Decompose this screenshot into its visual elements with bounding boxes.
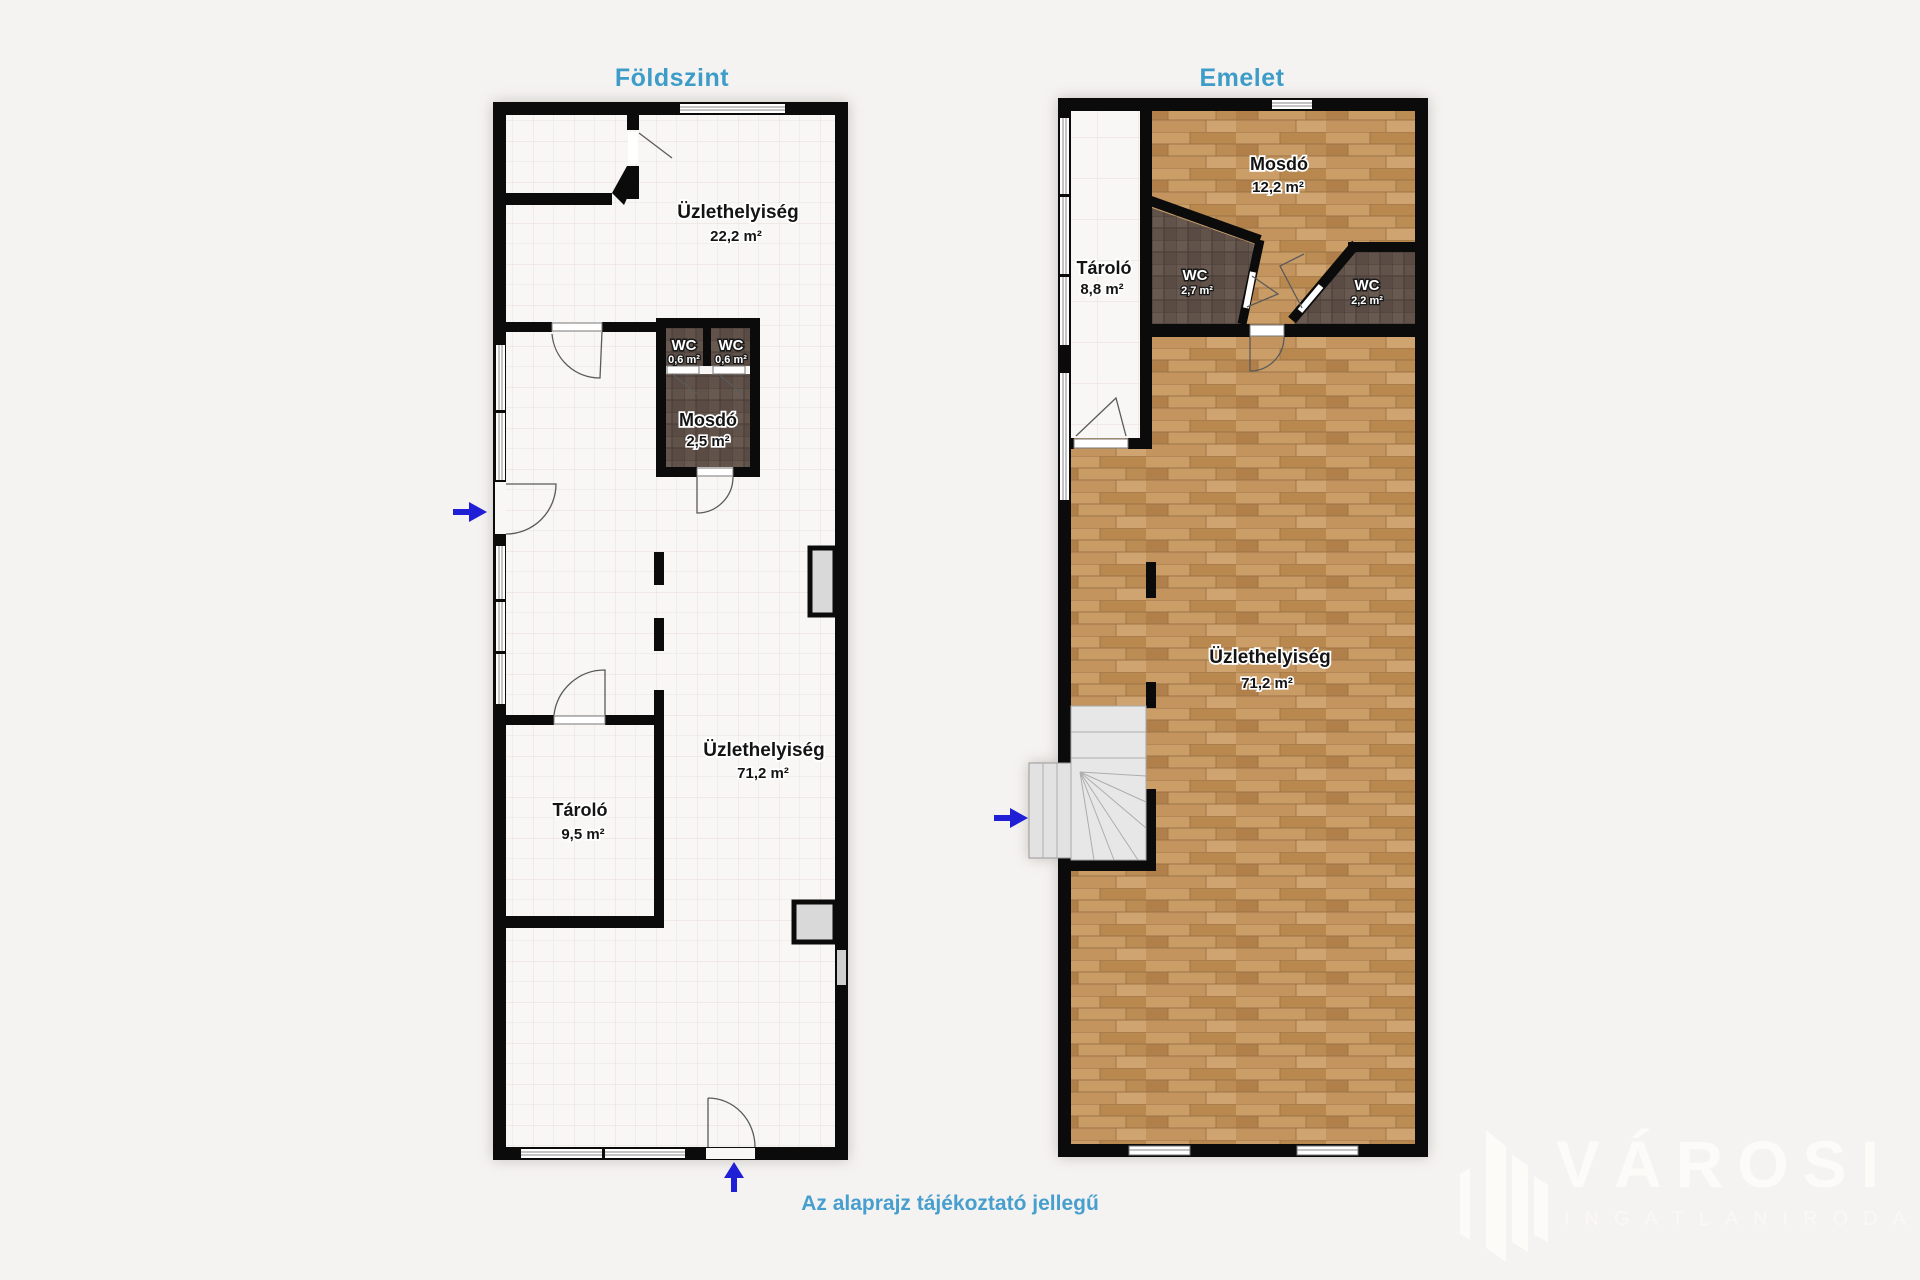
- ground-floor-plan: Üzlethelyiség 22,2 m² WC 0,6 m² WC 0,6 m…: [492, 100, 852, 1162]
- entrance-arrow-ground-left-icon: [453, 502, 487, 522]
- room-area-wc-left: 0,6 m²: [668, 354, 700, 366]
- room-area-wc-left-up: 2,7 m²: [1181, 285, 1213, 297]
- entrance-arrow-upper-icon: [994, 808, 1028, 828]
- upper-stairs: [1029, 706, 1146, 860]
- room-label-washroom-up: Mosdó: [1250, 154, 1308, 174]
- room-label-wc-left-up: WC: [1183, 267, 1208, 284]
- watermark-tagline: INGATLANIRODA: [1564, 1208, 1920, 1231]
- room-label-wc-right-up: WC: [1355, 277, 1380, 294]
- room-area-storage: 9,5 m²: [561, 826, 604, 843]
- floor-title-ground: Földszint: [492, 64, 852, 93]
- room-label-shop-up: Üzlethelyiség: [1209, 647, 1330, 668]
- room-label-storage-up: Tároló: [1076, 258, 1131, 278]
- floor-title-upper: Emelet: [1056, 64, 1428, 93]
- room-area-shop-top: 22,2 m²: [710, 228, 762, 245]
- room-label-shop-main: Üzlethelyiség: [703, 740, 824, 761]
- room-label-wc-right: WC: [719, 337, 744, 354]
- room-area-shop-main: 71,2 m²: [737, 765, 789, 782]
- room-area-wc-right-up: 2,2 m²: [1351, 295, 1383, 307]
- upper-floor-plan: Mosdó 12,2 m² Tároló 8,8 m² WC 2,7 m² WC…: [1026, 96, 1430, 1162]
- room-label-storage: Tároló: [552, 800, 607, 820]
- room-label-shop-top: Üzlethelyiség: [677, 202, 798, 223]
- watermark: VÁROSI INGATLANIRODA: [1452, 1102, 1920, 1280]
- entrance-arrow-ground-bottom-icon: [724, 1162, 744, 1192]
- room-area-washroom-up: 12,2 m²: [1252, 179, 1304, 196]
- room-area-wc-right: 0,6 m²: [715, 354, 747, 366]
- watermark-brand: VÁROSI: [1556, 1126, 1893, 1202]
- varosi-buildings-icon: [1460, 1112, 1556, 1272]
- room-area-storage-up: 8,8 m²: [1080, 281, 1123, 298]
- room-area-shop-up: 71,2 m²: [1241, 675, 1293, 692]
- room-area-washroom: 2,5 m²: [686, 433, 729, 450]
- disclaimer-text: Az alaprajz tájékoztató jellegű: [700, 1192, 1200, 1216]
- room-label-wc-left: WC: [672, 337, 697, 354]
- ground-floor-base: [506, 115, 835, 1147]
- room-label-washroom: Mosdó: [679, 410, 737, 430]
